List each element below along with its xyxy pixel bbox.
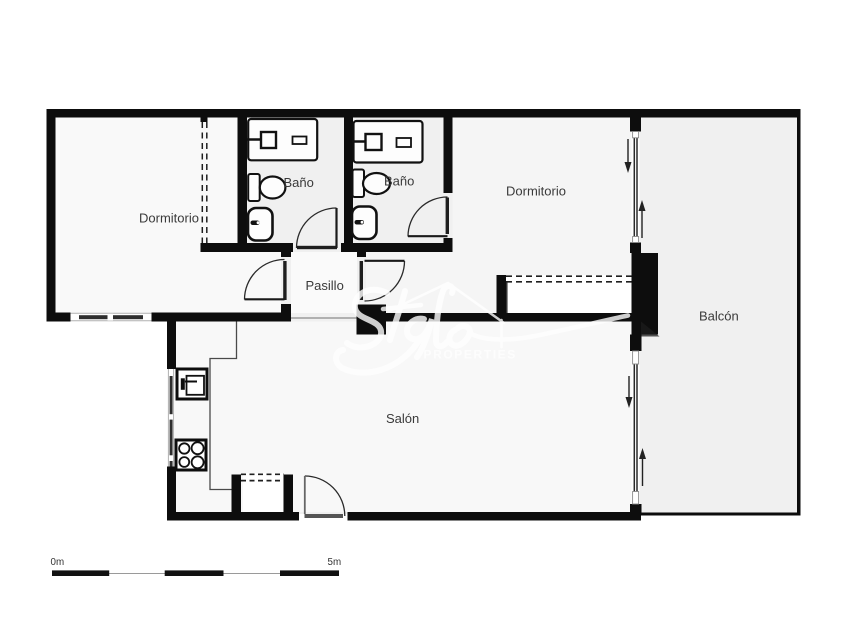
svg-text:0m: 0m bbox=[51, 557, 65, 568]
svg-text:PROPERTIES: PROPERTIES bbox=[424, 348, 517, 362]
svg-text:Dormitorio: Dormitorio bbox=[506, 184, 566, 199]
svg-text:Dormitorio: Dormitorio bbox=[139, 211, 199, 226]
svg-text:5m: 5m bbox=[328, 557, 342, 568]
svg-text:Balcón: Balcón bbox=[699, 308, 739, 323]
svg-text:Salón: Salón bbox=[386, 411, 419, 426]
svg-text:Baño: Baño bbox=[284, 175, 314, 190]
svg-text:Pasillo: Pasillo bbox=[306, 278, 344, 293]
svg-text:Baño: Baño bbox=[384, 174, 414, 189]
